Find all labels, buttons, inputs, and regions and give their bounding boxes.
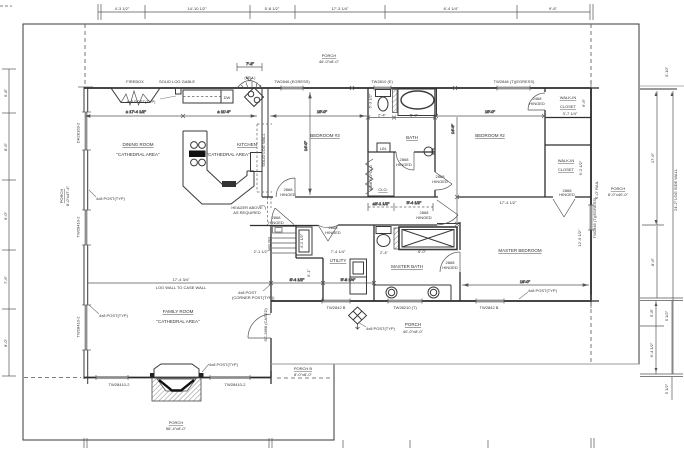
svg-text:± 11'-6": ± 11'-6" [217,109,231,114]
svg-text:TW28410-2: TW28410-2 [109,382,131,387]
svg-text:15'-0": 15'-0" [317,109,328,114]
svg-text:14'-6": 14'-6" [450,123,455,134]
svg-text:CLO.: CLO. [378,187,387,192]
svg-text:TW2846 (T)(EGRESS): TW2846 (T)(EGRESS) [494,79,535,84]
svg-text:3'-7 1/4": 3'-7 1/4" [563,111,578,116]
svg-text:DH28103-2: DH28103-2 [76,122,81,143]
svg-text:5'-8": 5'-8" [649,308,654,317]
svg-text:7'-2": 7'-2" [246,61,255,66]
svg-text:KITCHEN: KITCHEN [237,142,257,147]
svg-text:MASTER BATH: MASTER BATH [391,264,423,269]
svg-text:3'-10": 3'-10" [664,66,669,77]
svg-text:4x8 POST(TYP): 4x8 POST(TYP) [528,288,558,293]
svg-text:5'-8 1/4": 5'-8 1/4" [341,277,356,282]
svg-text:TW28410-2: TW28410-2 [76,216,81,238]
svg-text:5'-8": 5'-8" [3,88,8,97]
svg-text:4x8 POST(TYP): 4x8 POST(TYP) [96,196,126,201]
svg-text:TW2846 (EGRESS): TW2846 (EGRESS) [274,79,310,84]
svg-text:(CORNER POST(TYP)): (CORNER POST(TYP)) [232,295,275,300]
svg-text:CLOSET: CLOSET [558,167,575,172]
svg-text:17'-4 3/4": 17'-4 3/4" [173,277,190,282]
svg-text:PORCH: PORCH [405,322,421,327]
svg-text:TW28410-2: TW28410-2 [76,316,81,338]
svg-text:HINGED: HINGED [268,220,284,225]
svg-text:4x8 POST(TYP): 4x8 POST(TYP) [366,326,396,331]
svg-text:DW: DW [224,95,231,100]
svg-text:40'-0"x8'-0": 40'-0"x8'-0" [403,329,424,334]
svg-text:PORCH: PORCH [322,53,337,58]
svg-text:"CATHEDRAL AREA": "CATHEDRAL AREA" [206,152,250,157]
svg-text:5 1/2": 5 1/2" [664,310,669,321]
svg-text:24'-2" LOG SIDE WALL: 24'-2" LOG SIDE WALL [673,168,678,211]
svg-text:8'-0": 8'-0" [3,338,8,347]
svg-text:HINGED: HINGED [432,179,448,184]
svg-text:6'-0": 6'-0" [418,249,427,254]
svg-text:PORCH: PORCH [59,189,64,204]
svg-text:± 17'-4 1/2": ± 17'-4 1/2" [126,109,147,114]
svg-text:HINGED: HINGED [396,162,412,167]
svg-text:HINGED: HINGED [280,192,296,197]
svg-text:TW2842 B: TW2842 B [480,305,499,310]
svg-text:9'-2 1/2": 9'-2 1/2" [578,160,583,175]
svg-text:LOG WALL TO CASE WALL: LOG WALL TO CASE WALL [156,285,207,290]
svg-text:"CATHEDRAL AREA": "CATHEDRAL AREA" [116,152,160,157]
svg-text:46'-0"x8'-0": 46'-0"x8'-0" [319,59,340,64]
svg-text:HINGED: HINGED [416,215,432,220]
svg-text:5 1/2": 5 1/2" [664,383,669,394]
svg-text:8'-6": 8'-6" [3,142,8,151]
svg-text:6'-4 1/4": 6'-4 1/4" [444,6,459,11]
svg-text:4'-3 1/2": 4'-3 1/2" [115,6,130,11]
svg-text:6'-4 1/2": 6'-4 1/2" [649,342,654,357]
svg-text:4068 BI-FOLD: 4068 BI-FOLD [368,165,373,191]
svg-text:PORCH B: PORCH B [294,366,313,371]
svg-text:15'-0": 15'-0" [485,109,496,114]
svg-text:LIN.: LIN. [380,146,387,151]
svg-text:TW2846 (T)(EGRESS): TW2846 (T)(EGRESS) [592,197,597,238]
svg-text:14'-0": 14'-0" [303,140,308,151]
svg-text:WALK-IN: WALK-IN [560,95,577,100]
svg-text:8'-6": 8'-6" [650,257,655,266]
svg-text:6'-1": 6'-1" [306,268,311,277]
svg-text:6'-6": 6'-6" [581,98,586,107]
svg-text:AS REQUIRED: AS REQUIRED [233,210,261,215]
svg-text:8'-0"x40'-0": 8'-0"x40'-0" [608,192,629,197]
svg-text:5'-0": 5'-0" [410,113,419,118]
svg-text:PORCH: PORCH [611,186,626,191]
svg-text:±2'-1 1/2": ±2'-1 1/2" [373,201,390,206]
svg-text:17'-4 1/2": 17'-4 1/2" [500,200,517,205]
svg-text:2'-1 1/2": 2'-1 1/2" [254,249,269,254]
svg-text:7'-6": 7'-6" [3,275,8,284]
svg-text:HINGED: HINGED [325,230,341,235]
svg-text:(BELL): (BELL) [245,76,256,80]
svg-text:56'-4"x8'-0": 56'-4"x8'-0" [166,426,187,431]
svg-text:WALK-IN: WALK-IN [558,158,575,163]
svg-text:"CATHEDRAL AREA": "CATHEDRAL AREA" [156,319,200,324]
svg-text:CLOSET: CLOSET [560,104,577,109]
svg-text:HINGED: HINGED [559,192,575,197]
svg-text:4'-2 1/2": 4'-2 1/2" [299,233,304,248]
svg-text:PORCH: PORCH [169,420,184,425]
svg-text:TW2810 (E): TW2810 (E) [371,79,393,84]
svg-text:5'-4 1/2": 5'-4 1/2" [407,200,422,205]
svg-text:FIREBOX: FIREBOX [126,79,144,84]
svg-text:5'-0" RAIL: 5'-0" RAIL [594,180,599,199]
svg-text:4x8 POST(TYP): 4x8 POST(TYP) [99,313,129,318]
svg-text:2'-4": 2'-4" [380,250,389,255]
svg-text:8'-0"x47'-4": 8'-0"x47'-4" [65,185,70,206]
svg-text:TW2842 B: TW2842 B [327,305,346,310]
svg-text:TW28210 (T): TW28210 (T) [393,305,417,310]
svg-text:14'-10 1/2": 14'-10 1/2" [187,6,207,11]
svg-text:UTILITY: UTILITY [330,258,347,263]
svg-text:SC-2868 (CASED): SC-2868 (CASED) [263,308,268,342]
svg-text:BEDROOM #3: BEDROOM #3 [310,133,340,138]
svg-text:BEDROOM #2: BEDROOM #2 [475,133,505,138]
svg-text:HINGED: HINGED [529,101,545,106]
svg-text:17'-6": 17'-6" [650,152,655,163]
svg-text:2'-4": 2'-4" [378,113,387,118]
svg-text:4x8 POST(TYP): 4x8 POST(TYP) [209,362,239,367]
svg-text:HINGED: HINGED [442,265,458,270]
svg-text:12'-9 1/2": 12'-9 1/2" [577,229,582,246]
svg-text:5'-8 1/2": 5'-8 1/2" [265,6,280,11]
svg-text:17'-3 1/4": 17'-3 1/4" [332,6,349,11]
svg-text:8'-0"x8'-0": 8'-0"x8'-0" [294,372,313,377]
svg-text:7'-4 1/4": 7'-4 1/4" [331,249,346,254]
svg-text:BATH: BATH [406,135,418,140]
svg-text:DINING ROOM: DINING ROOM [123,142,154,147]
svg-text:5'-3 1/2": 5'-3 1/2" [368,93,373,108]
svg-text:8'-4 1/2": 8'-4 1/2" [290,277,305,282]
svg-text:MASTER BEDROOM: MASTER BEDROOM [498,248,542,253]
svg-text:9'-6": 9'-6" [549,6,558,11]
svg-text:SOLID LOG GABLE: SOLID LOG GABLE [159,79,195,84]
svg-text:FAMILY ROOM: FAMILY ROOM [163,309,194,314]
svg-text:TW28410-2: TW28410-2 [225,382,247,387]
svg-text:4x8 POST(TYP): 4x8 POST(TYP) [127,99,157,104]
svg-text:18'-0": 18'-0" [520,279,531,284]
svg-text:9'-0": 9'-0" [3,211,8,220]
